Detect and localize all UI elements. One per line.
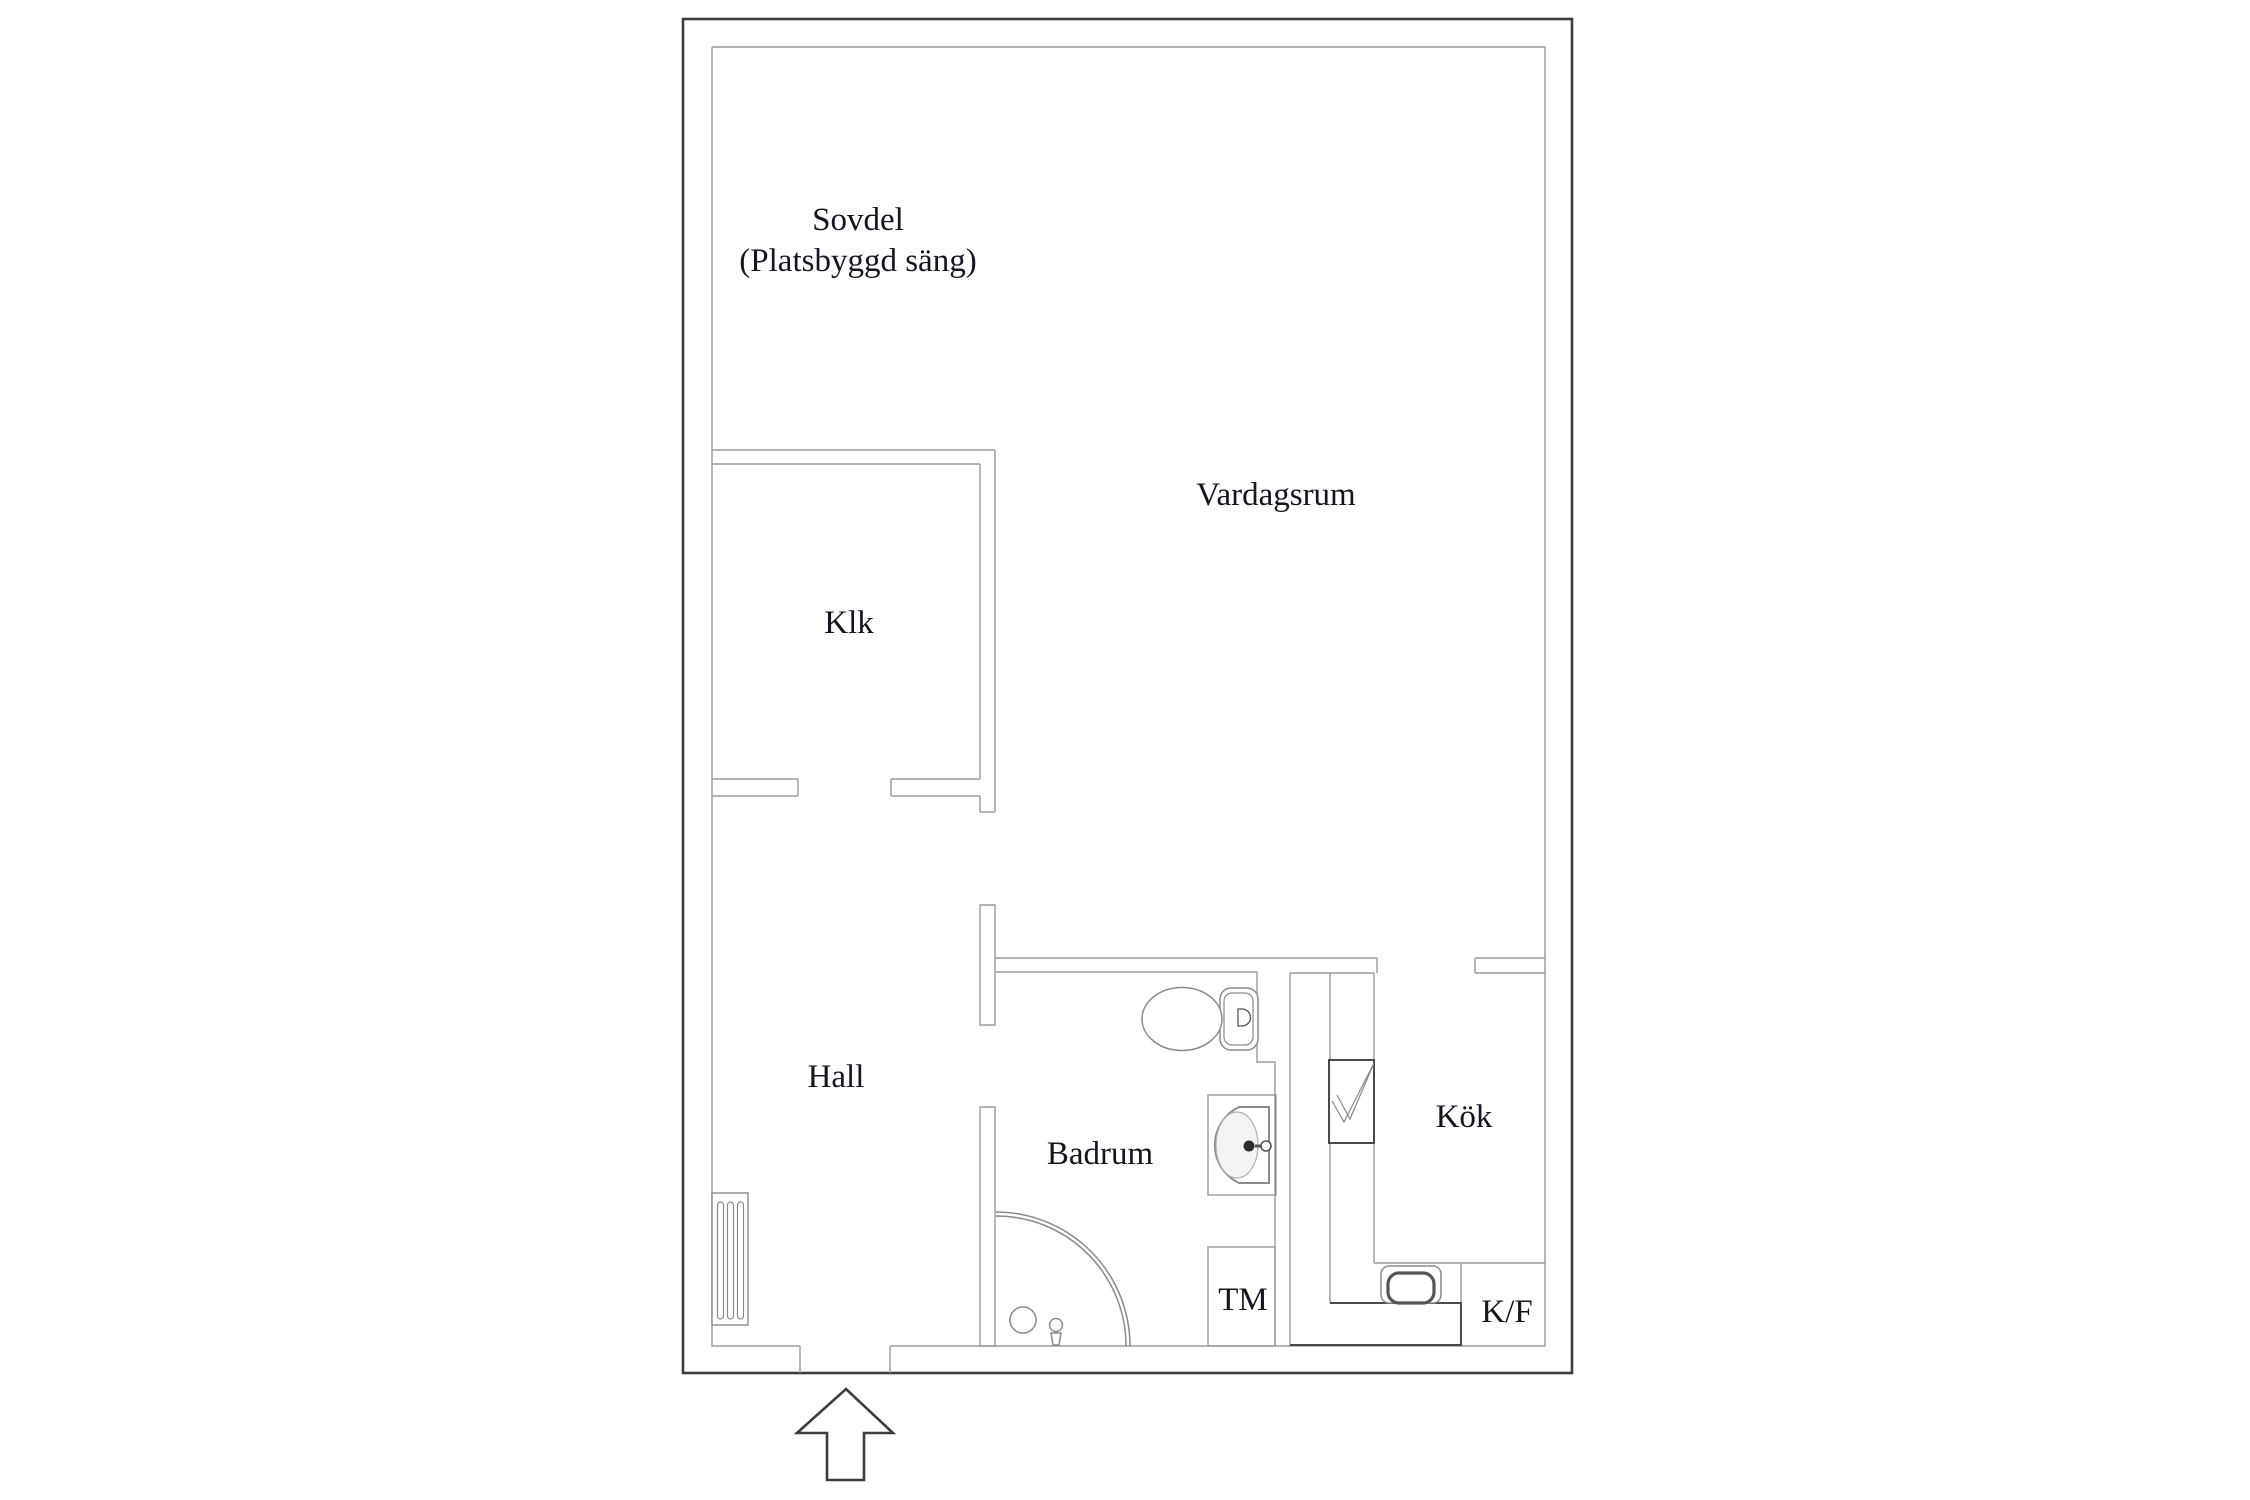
room-label-badrum: Badrum [1047,1136,1154,1172]
room-label-vardagsrum: Vardagsrum [1196,477,1356,513]
toilet-icon [1142,988,1258,1051]
room-label-sovdel-line2: (Platsbyggd säng) [739,243,976,279]
tap-icon [1244,1141,1255,1152]
room-label-hall: Hall [808,1059,865,1095]
floor-drain-icon [1010,1307,1036,1333]
room-label-sovdel-line1: Sovdel [812,202,904,238]
radiator-icon [712,1193,748,1325]
room-label-kok: Kök [1436,1099,1493,1135]
stove-icon [1329,1060,1374,1143]
room-label-klk: Klk [824,605,874,641]
flush-button-icon [1238,1009,1251,1026]
floor-plan: Sovdel (Platsbyggd säng) Vardagsrum Klk … [0,0,2250,1500]
kitchen-sink-icon [1381,1266,1441,1303]
entrance-arrow-icon [797,1389,893,1480]
room-label-kf: K/F [1481,1294,1532,1330]
room-label-tm: TM [1218,1282,1268,1318]
floor-plan-page: Sovdel (Platsbyggd säng) Vardagsrum Klk … [0,0,2250,1500]
